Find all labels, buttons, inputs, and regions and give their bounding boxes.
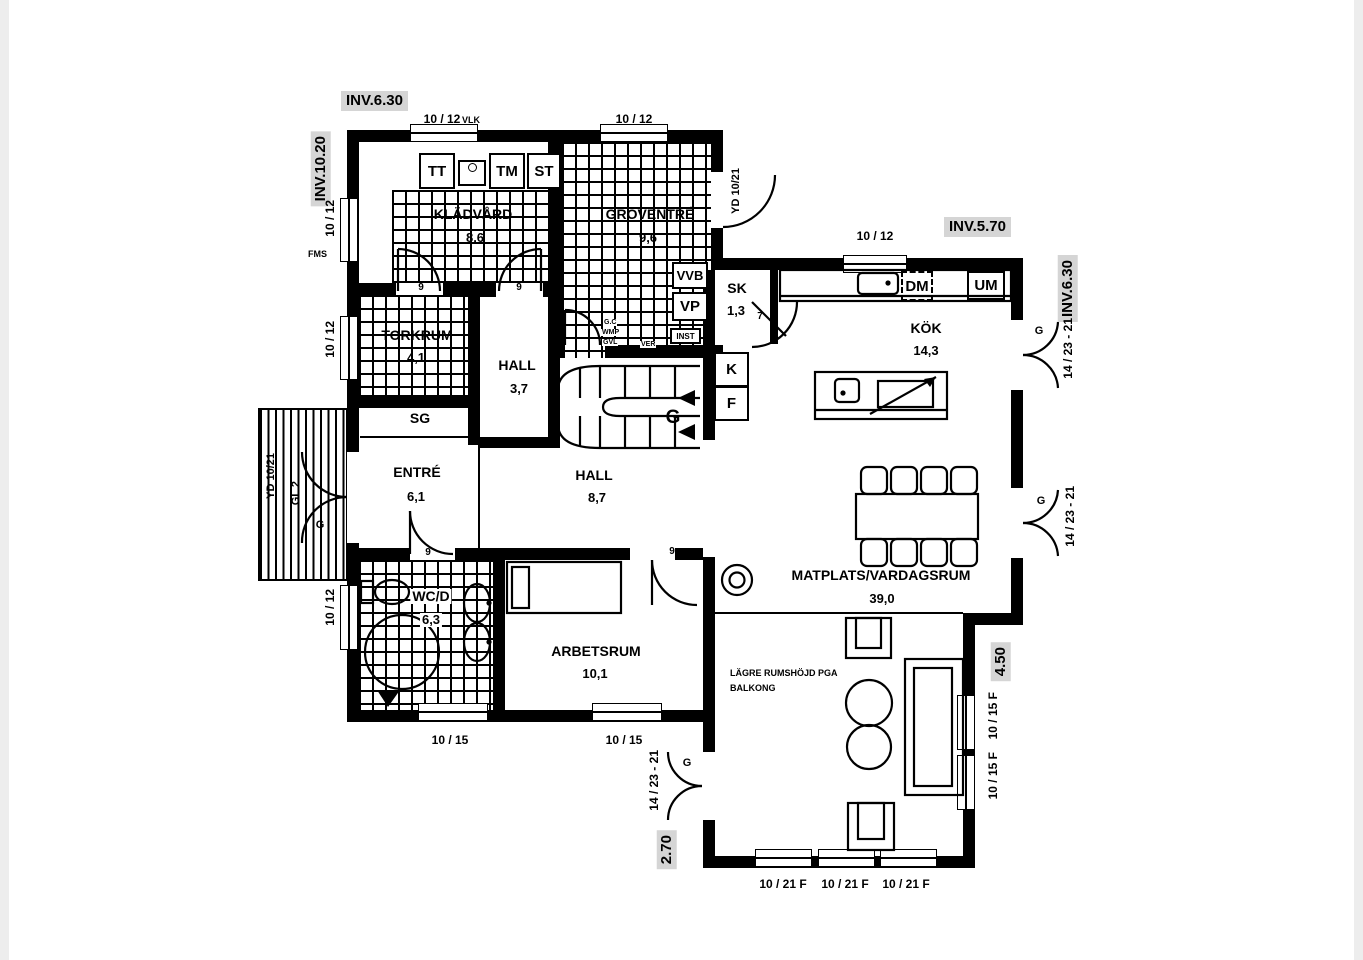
dishwasher-box: DM <box>901 271 933 301</box>
window-groventre <box>600 124 668 142</box>
window-kladvard <box>410 124 478 142</box>
dim-window: 10 / 12 <box>424 113 461 126</box>
inv-tag-top-left: INV.6.30 <box>341 91 408 111</box>
groventre-tile-floor <box>562 142 711 358</box>
armchair-top <box>846 618 891 658</box>
round-table-2 <box>847 725 891 769</box>
wall-sg-east <box>468 283 480 445</box>
wall-kladvard-south-a <box>347 283 396 297</box>
line-sg-shelf <box>360 436 468 438</box>
door-width: 9 <box>669 547 675 558</box>
dim-exterior-door: YD 10/21 <box>266 453 278 499</box>
room-label-wcd: WC/D <box>410 589 451 604</box>
room-area-kladvard: 8,6 <box>466 231 484 245</box>
door-width: 9 <box>516 283 522 294</box>
room-label-kok: KÖK <box>910 321 941 336</box>
door-gap-groventre <box>711 172 723 228</box>
wall-kladvard-south-c <box>543 283 561 297</box>
line-entre-hall <box>478 445 480 549</box>
chair <box>861 539 887 566</box>
window-south-1 <box>418 703 488 721</box>
room-label-torkrum: TORKRUM <box>381 328 452 343</box>
stair-arrow-up <box>678 390 695 406</box>
room-area-matplats: 39,0 <box>869 592 894 606</box>
window-living-south-1 <box>755 849 812 867</box>
laundry-sink-dot <box>468 163 477 172</box>
window-west-1 <box>340 198 358 262</box>
window-living-south-2 <box>818 849 875 867</box>
kitchen-sink-dot <box>885 280 890 285</box>
note-gc: G.C <box>603 319 617 326</box>
dim-window: 10 / 12 <box>324 589 337 626</box>
inv-tag-kitchen: INV.5.70 <box>944 217 1011 237</box>
fms-note: FMS <box>308 250 327 259</box>
dining-table <box>856 494 978 539</box>
dim-window: 10 / 21 F <box>882 878 929 891</box>
inv-tag-kitchen-right: INV.6.30 <box>1058 255 1078 322</box>
wall-groventre-south-a <box>548 345 565 358</box>
round-table-1 <box>846 680 892 726</box>
dim-window: 10 / 15 F <box>987 692 1000 739</box>
door-g-marker: G <box>683 758 692 770</box>
height-tag-270: 2.70 <box>657 830 677 869</box>
oven-box: UM <box>967 271 1005 300</box>
room-label-hall: HALL <box>575 468 612 483</box>
island-sink-dot <box>840 390 845 395</box>
door-arc-kok-balcony-bottom <box>1023 355 1058 388</box>
window-arbetsrum <box>592 703 662 721</box>
chair <box>951 539 977 566</box>
wall-groventre-south-b <box>605 345 723 358</box>
kitchen-sink <box>858 273 898 294</box>
room-area-hall-ovre: 3,7 <box>510 382 528 396</box>
room-area-arbetsrum: 10,1 <box>582 667 607 681</box>
note-ver: VER <box>640 341 656 348</box>
dim-window: 10 / 12 <box>324 200 337 237</box>
dim-door: 14 / 23 - 21 <box>1062 318 1075 379</box>
door-gap-entre <box>347 452 359 543</box>
window-wcd <box>340 585 358 650</box>
room-label-entre: ENTRÉ <box>393 465 440 480</box>
door-g-marker: G <box>316 520 325 532</box>
wall-living-west-upper <box>703 722 715 752</box>
wall-torkrum-south <box>347 395 478 408</box>
wall-hall-stub <box>480 437 548 448</box>
room-label-matplats: MATPLATS/VARDAGSRUM <box>792 568 971 583</box>
chair <box>921 539 947 566</box>
room-label-kladvard: KLÄDVÅRD <box>434 207 513 222</box>
kitchen-island <box>815 372 947 419</box>
vlk-note: VLK <box>462 116 480 125</box>
dim-window: 10 / 12 <box>616 113 653 126</box>
door-gap-kok <box>1011 320 1023 390</box>
room-area-hall: 8,7 <box>588 491 606 505</box>
dim-door: 14 / 23 - 21 <box>648 750 661 811</box>
floor-plan: TT TM ST VVB VP INST K F DM UM <box>0 0 1363 960</box>
window-kok <box>843 255 907 273</box>
note-lagre-rumshojd-2: BALKONG <box>730 684 776 693</box>
door-arc-wcd <box>410 511 453 554</box>
bed <box>507 562 621 613</box>
freezer-box: F <box>714 386 749 421</box>
dim-window: 10 / 15 <box>606 734 643 747</box>
st-box: ST <box>527 153 561 189</box>
washer-box: TM <box>489 153 525 189</box>
dim-window: 10 / 21 F <box>759 878 806 891</box>
fireplace-outer <box>722 565 752 595</box>
armchair-bottom-seat <box>858 803 884 839</box>
chair <box>891 467 917 494</box>
room-area-torkrum: 4,1 <box>407 351 425 365</box>
bed-pillow <box>512 567 529 608</box>
chair <box>891 539 917 566</box>
torkrum-tile-floor <box>359 295 478 395</box>
inst-box: INST <box>670 328 701 344</box>
fridge-box: K <box>714 352 749 387</box>
page-edge-right <box>1354 0 1363 960</box>
dim-door: 14 / 23 - 21 <box>1064 486 1077 547</box>
armchair-bottom <box>848 803 894 850</box>
room-area-sk: 1,3 <box>727 304 745 318</box>
cooktop-arrow <box>924 377 936 387</box>
note-gvl: GVL <box>602 339 618 346</box>
room-label-sk: SK <box>727 281 746 296</box>
dim-exterior-door: YD 10/21 <box>731 168 743 214</box>
room-label-hall-ovre: HALL <box>498 358 535 373</box>
cooktop <box>878 381 933 407</box>
room-label-sg: SG <box>410 411 430 426</box>
glass-note: GL 2 <box>291 481 303 505</box>
window-living-east-1 <box>957 695 975 750</box>
door-width: 9 <box>425 548 431 559</box>
wall-sk-east <box>770 270 778 344</box>
heat-pump-box: VP <box>672 292 708 321</box>
dim-window: 10 / 12 <box>857 230 894 243</box>
door-width: 9 <box>418 283 424 294</box>
room-area-wcd: 6,3 <box>420 613 442 627</box>
wall-hall-south-a <box>347 548 410 560</box>
sofa <box>905 659 963 795</box>
wall-hall-south-b <box>455 548 630 560</box>
wall-matplats-west <box>703 557 715 722</box>
window-torkrum <box>340 316 358 380</box>
wcd-tile-floor <box>359 560 493 710</box>
water-heater-box: VVB <box>672 262 708 289</box>
door-arc-arbetsrum <box>652 560 697 605</box>
note-lagre-rumshojd-1: LÄGRE RUMSHÖJD PGA <box>730 669 838 678</box>
page-edge-left <box>0 0 9 960</box>
wall-kitchen-east <box>1011 258 1023 625</box>
dryer-box: TT <box>419 153 455 189</box>
door-arc-matplats-bottom <box>1023 523 1058 556</box>
window-living-east-2 <box>957 755 975 810</box>
door-g-marker: G <box>1037 496 1046 508</box>
wall-hall-south-c <box>675 548 703 560</box>
room-area-kok: 14,3 <box>913 344 938 358</box>
height-tag-450: 4.50 <box>991 642 1011 681</box>
door-gap-matplats <box>1011 488 1023 558</box>
armchair-top-seat <box>856 618 881 648</box>
door-g-marker: G <box>1035 326 1044 338</box>
room-label-groventre: GROVENTRÉ <box>606 207 695 222</box>
stair-arrow-down <box>678 424 695 440</box>
line-lower-living <box>715 612 963 614</box>
fireplace-inner <box>730 573 745 588</box>
chair <box>951 467 977 494</box>
door-arc-living-balcony-bottom <box>668 786 702 820</box>
window-living-south-3 <box>880 849 937 867</box>
dim-window: 10 / 12 <box>324 321 337 358</box>
dim-window: 10 / 15 <box>432 734 469 747</box>
dim-window: 10 / 15 F <box>987 752 1000 799</box>
door-width: 9 <box>557 316 563 327</box>
note-wmp: WMP <box>601 329 620 336</box>
room-area-groventre: 9,6 <box>639 231 657 245</box>
wall-living-west-lower <box>703 820 715 868</box>
wall-wcd-arbetsrum <box>493 560 505 710</box>
chair <box>921 467 947 494</box>
sofa-seat <box>914 668 952 786</box>
chair <box>861 467 887 494</box>
inv-tag-west: INV.10.20 <box>311 131 331 206</box>
stair-rail <box>603 398 700 416</box>
room-label-arbetsrum: ARBETSRUM <box>551 644 640 659</box>
wall-stair-west <box>548 358 560 448</box>
stair-g-marker: G <box>666 408 681 428</box>
room-area-entre: 6,1 <box>407 490 425 504</box>
island-sink <box>835 379 859 402</box>
dim-window: 10 / 21 F <box>821 878 868 891</box>
door-width: 7 <box>757 312 763 323</box>
